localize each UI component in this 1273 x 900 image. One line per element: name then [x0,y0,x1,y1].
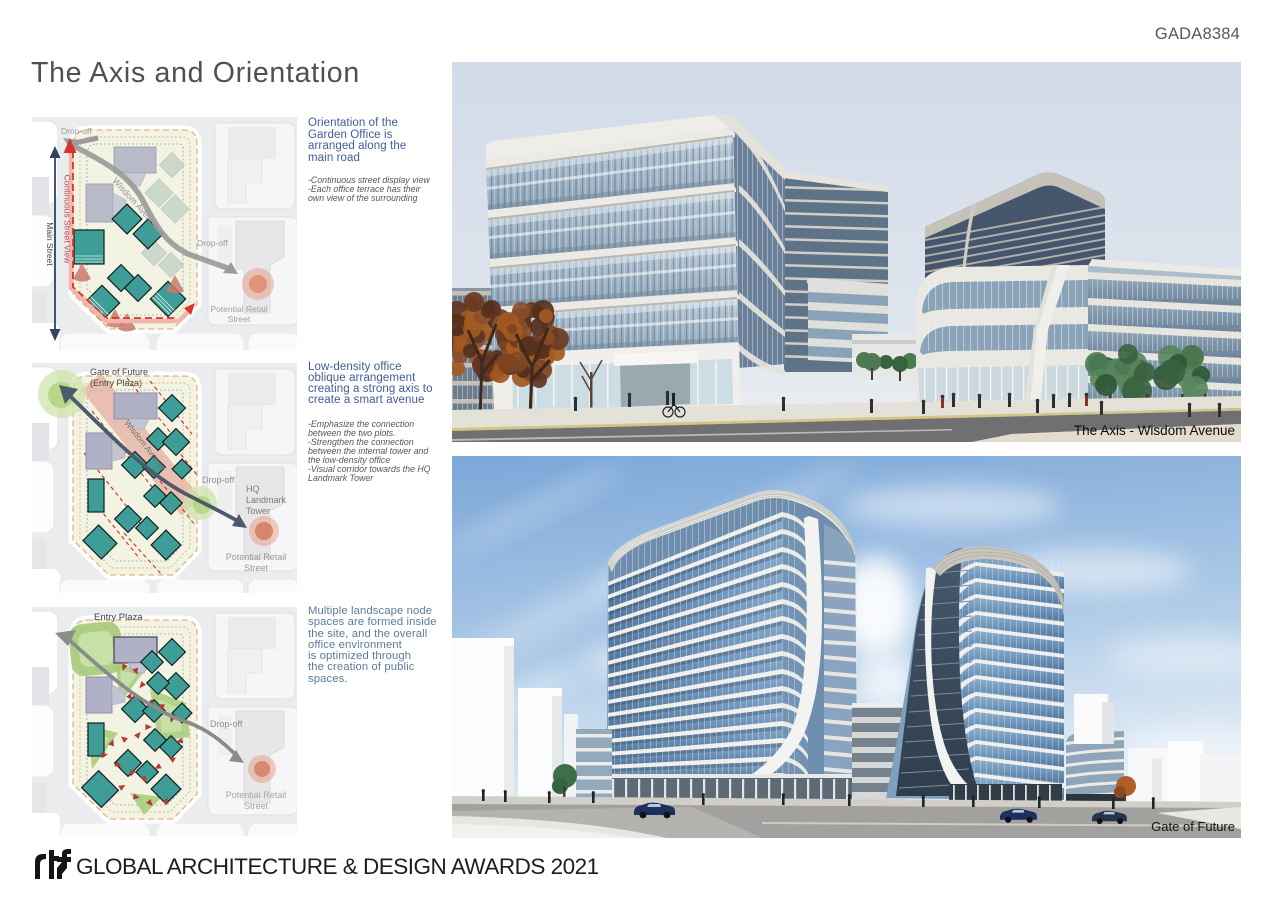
svg-text:Street: Street [244,563,269,573]
svg-text:Drop-off: Drop-off [202,475,235,485]
svg-text:Gate of Future: Gate of Future [90,367,148,377]
svg-text:Street: Street [228,314,251,324]
svg-text:Potential Retail: Potential Retail [226,552,287,562]
svg-text:Drop-off: Drop-off [197,238,228,248]
svg-text:HQ: HQ [246,484,260,494]
svg-text:Tower: Tower [246,506,270,516]
svg-text:Continuous Street View: Continuous Street View [63,175,73,265]
svg-text:Potential Retail: Potential Retail [210,304,267,314]
svg-text:Street: Street [244,801,269,811]
svg-text:Drop-off: Drop-off [61,126,92,136]
svg-text:Main Street: Main Street [45,222,55,266]
svg-text:Potential Retail: Potential Retail [226,790,287,800]
svg-text:Drop-off: Drop-off [210,719,243,729]
svg-text:The Axis - Wisdom Avenue: The Axis - Wisdom Avenue [1074,423,1235,438]
svg-text:Entry Plaza: Entry Plaza [94,612,143,623]
svg-text:Landmark: Landmark [246,495,287,505]
svg-text:(Entry Plaza): (Entry Plaza) [90,378,142,388]
svg-text:Gate of Future: Gate of Future [1151,819,1235,834]
